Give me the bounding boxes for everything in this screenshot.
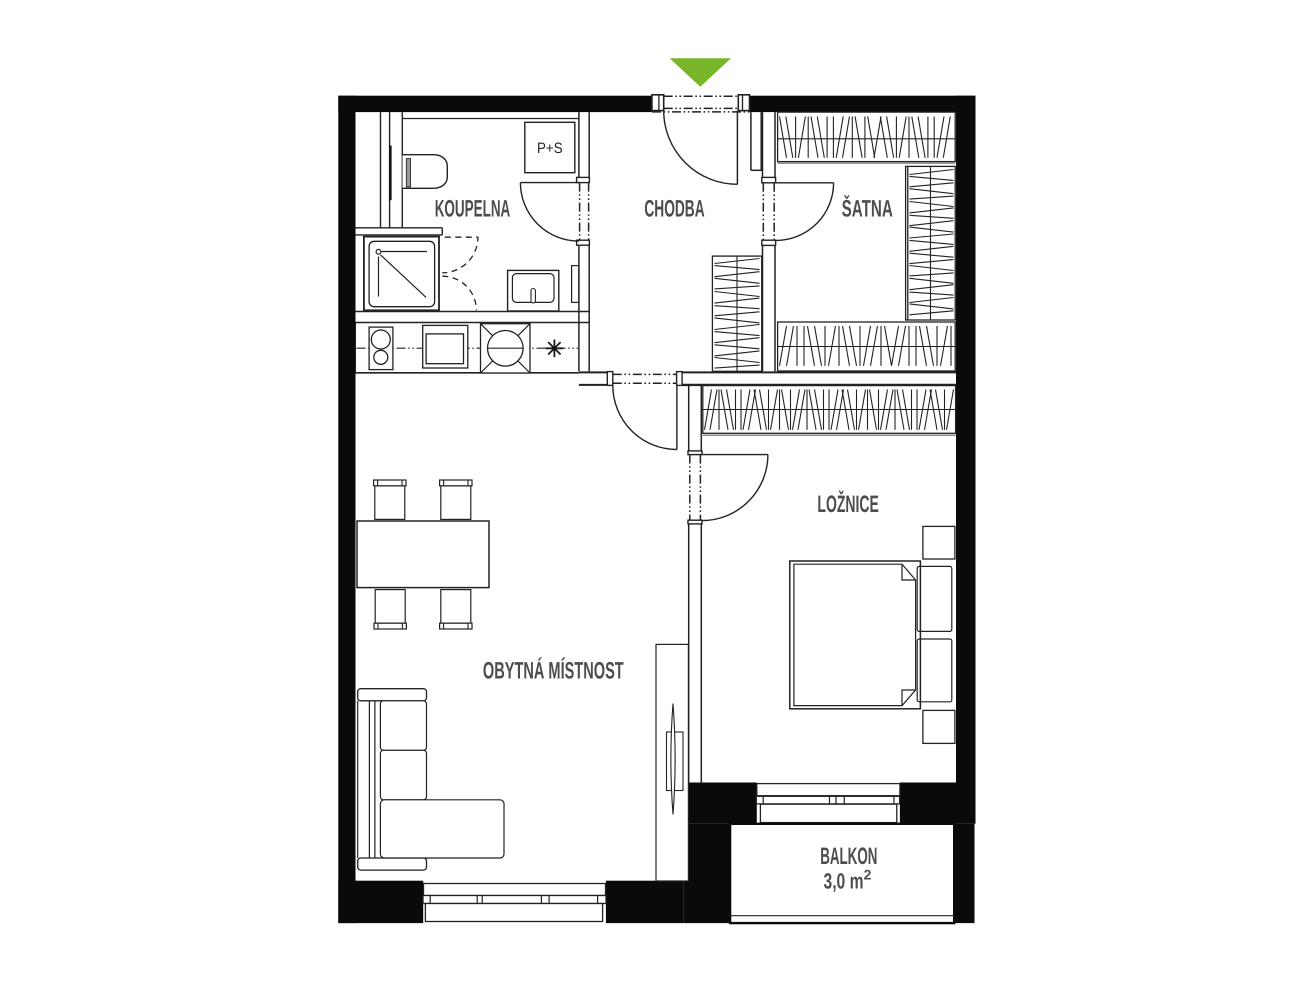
svg-text:3,0 m: 3,0 m bbox=[824, 869, 864, 894]
svg-text:OBYTNÁ MÍSTNOST: OBYTNÁ MÍSTNOST bbox=[483, 657, 624, 685]
svg-text:2: 2 bbox=[864, 866, 872, 882]
svg-text:P+S: P+S bbox=[537, 140, 563, 157]
svg-text:ŠATNA: ŠATNA bbox=[842, 194, 893, 222]
svg-text:CHODBA: CHODBA bbox=[644, 195, 704, 222]
svg-text:LOŽNICE: LOŽNICE bbox=[817, 490, 878, 518]
svg-text:KOUPELNA: KOUPELNA bbox=[435, 195, 511, 222]
